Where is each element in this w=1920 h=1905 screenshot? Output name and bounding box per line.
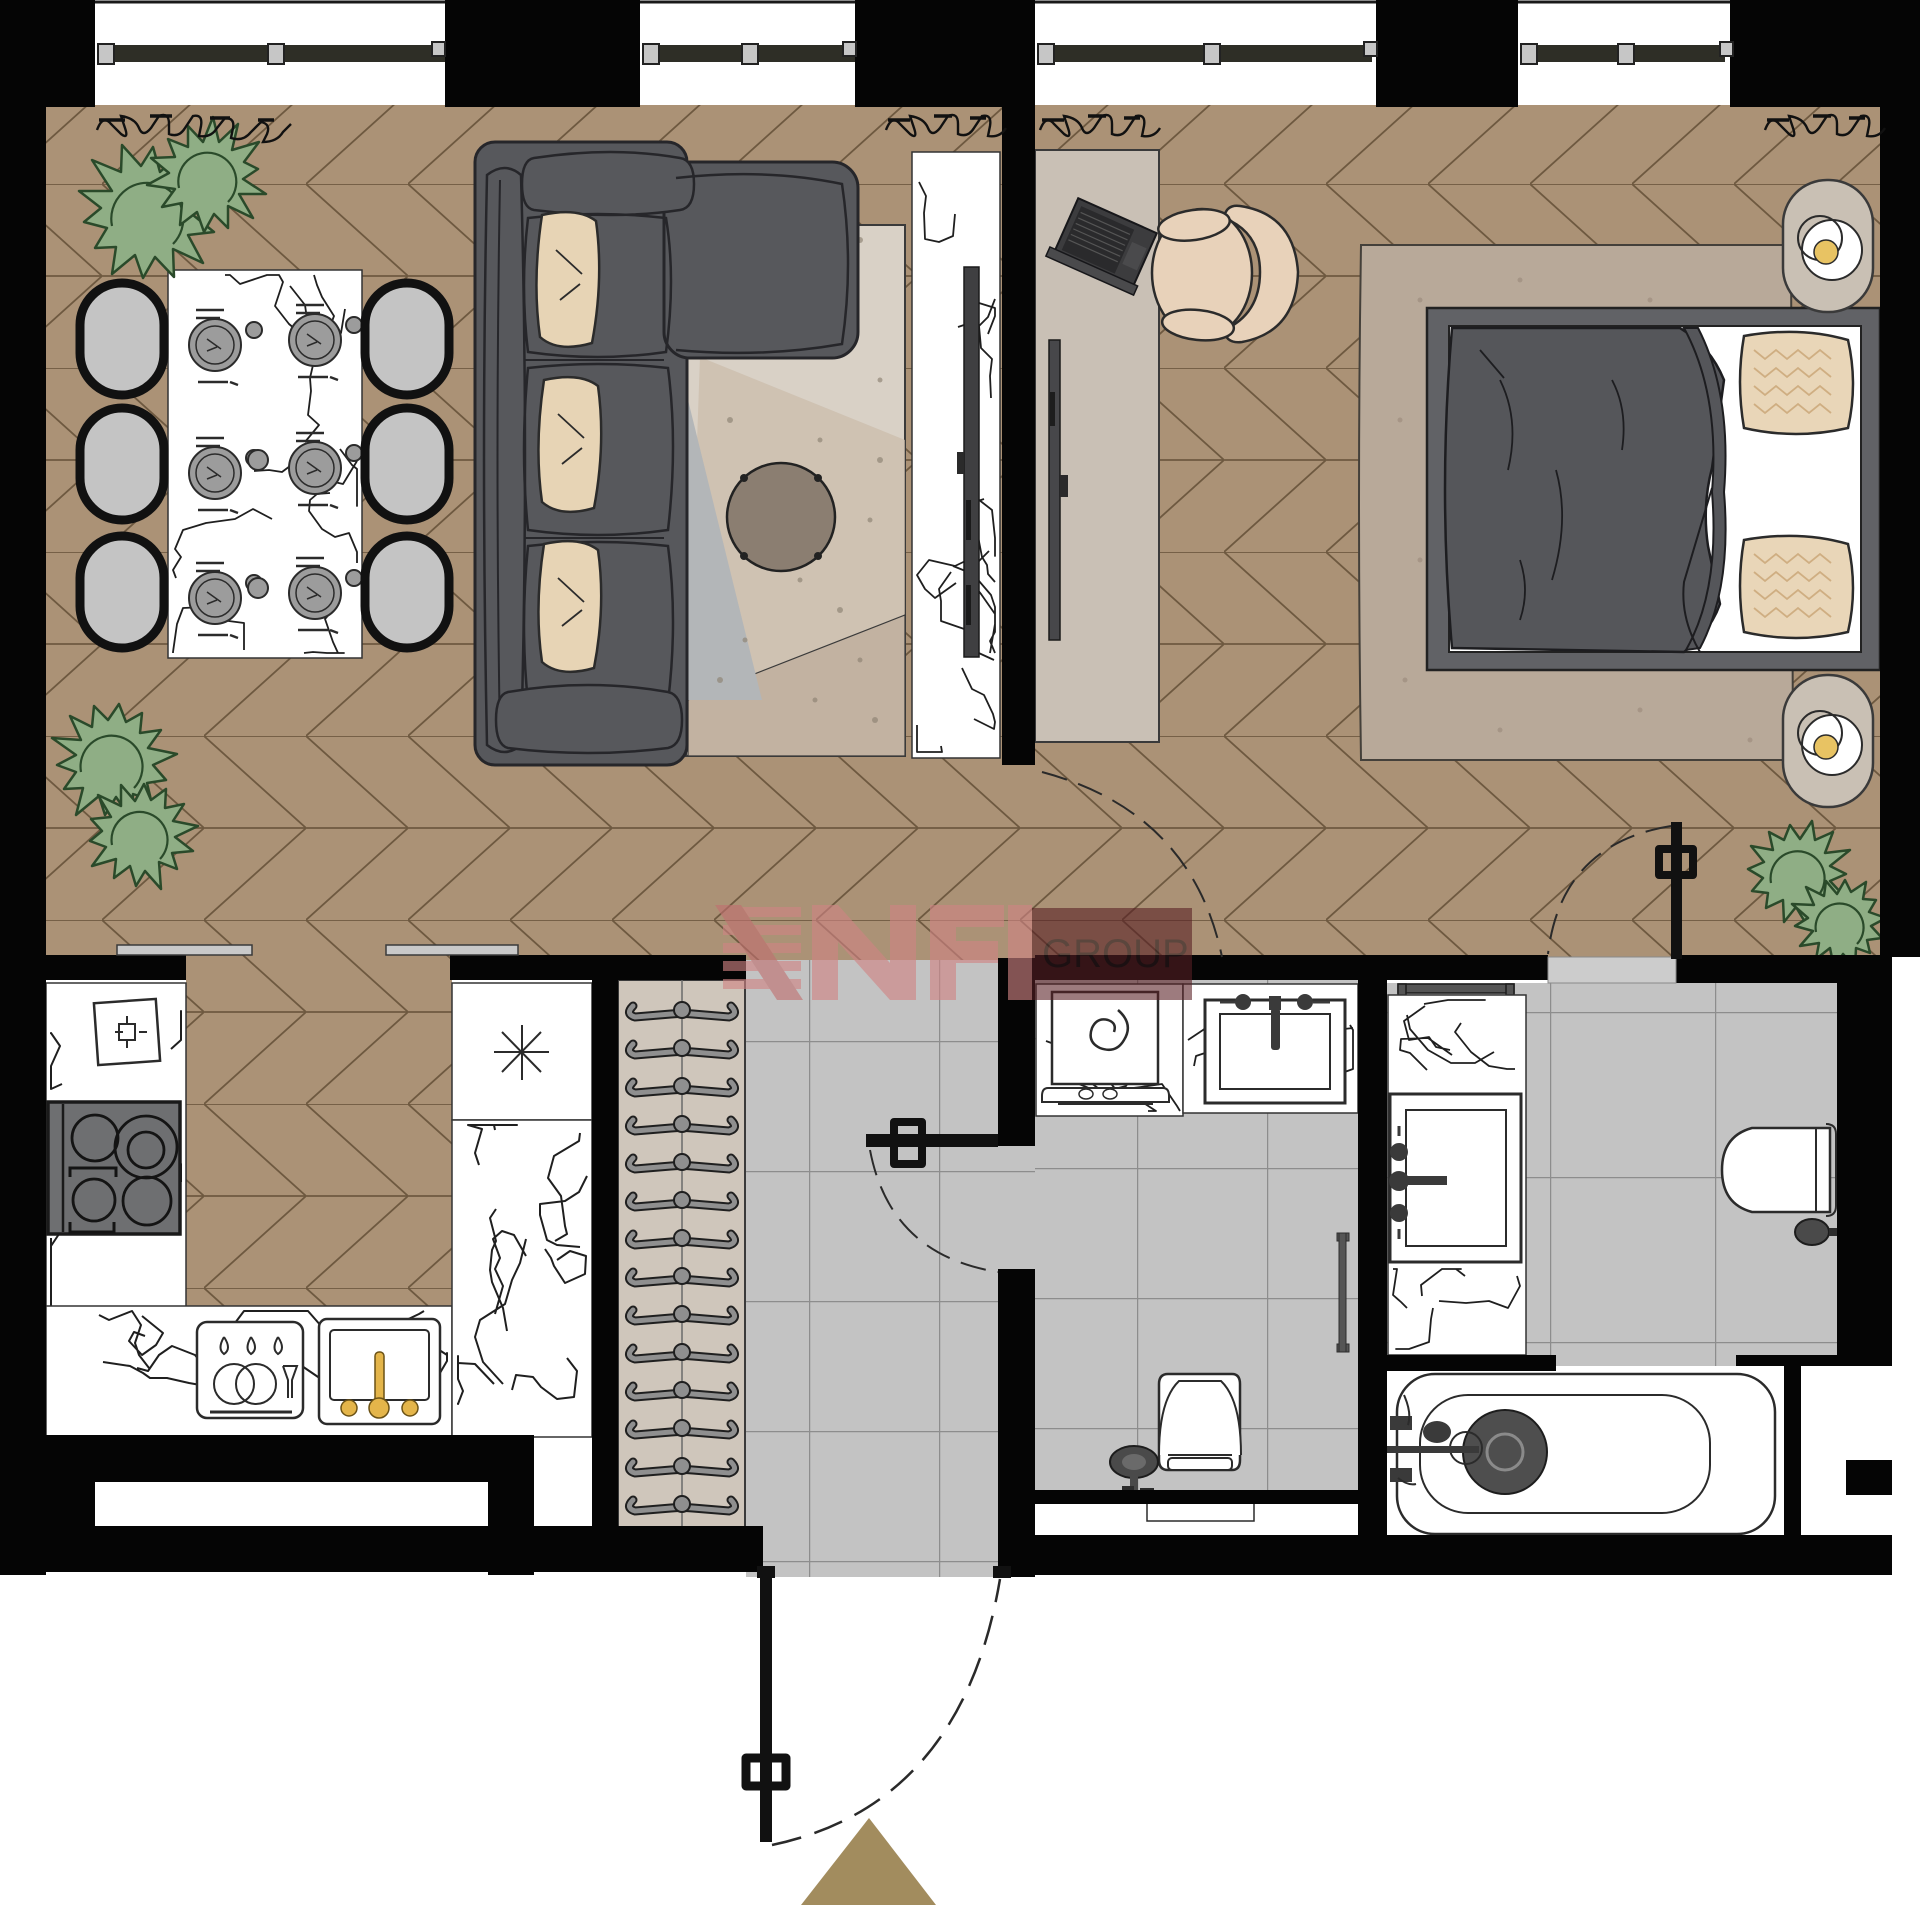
svg-text:GROUP: GROUP <box>1042 932 1189 976</box>
